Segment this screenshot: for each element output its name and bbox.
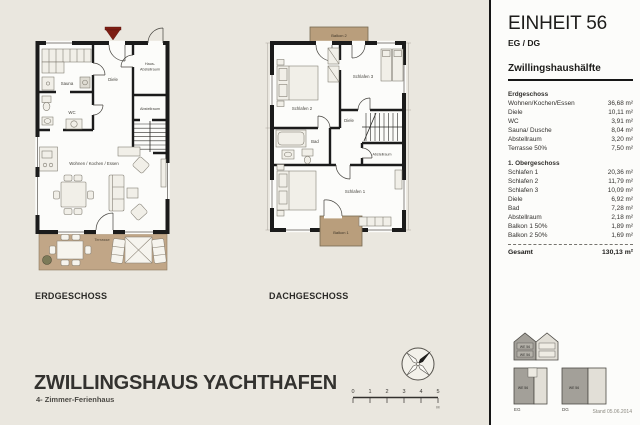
sink bbox=[282, 150, 294, 159]
room-label-schlafen2: Schlafen 2 bbox=[292, 106, 313, 111]
row-label: Abstellraum bbox=[508, 135, 542, 144]
floor-label-dachgeschoss: DACHGESCHOSS bbox=[269, 291, 348, 301]
row-label: Terrasse 50% bbox=[508, 144, 547, 153]
table-row: Balkon 1 50%1,89 m² bbox=[508, 222, 633, 231]
table-row: Balkon 2 50%1,69 m² bbox=[508, 231, 633, 240]
table-row: Abstellraum3,20 m² bbox=[508, 135, 633, 144]
bench bbox=[359, 217, 391, 226]
room-label-balkon1: Balkon 1 bbox=[333, 230, 349, 235]
row-label: Sauna/ Dusche bbox=[508, 126, 552, 135]
thumb-label-eg: EG bbox=[514, 407, 521, 412]
scale-unit-label: M bbox=[436, 406, 439, 410]
row-value: 36,68 m² bbox=[608, 99, 633, 108]
table-row: Diele10,11 m² bbox=[508, 108, 633, 117]
unit-title: EINHEIT 56 bbox=[508, 13, 633, 35]
room-label-schlafen3: Schlafen 3 bbox=[353, 74, 374, 79]
row-value: 1,69 m² bbox=[611, 231, 633, 240]
bed-schlafen1 bbox=[277, 165, 316, 217]
we-label: WE 56 bbox=[569, 386, 579, 390]
sideboard bbox=[118, 147, 140, 156]
room-label-balkon2: Balkon 2 bbox=[331, 33, 347, 38]
bathtub bbox=[276, 130, 306, 147]
washer bbox=[66, 119, 82, 129]
shower bbox=[42, 77, 54, 90]
room-label-schlafen1: Schlafen 1 bbox=[345, 189, 366, 194]
row-label: Wohnen/Kochen/Essen bbox=[508, 99, 575, 108]
row-value: 3,20 m² bbox=[611, 135, 633, 144]
scale-tick-label: 5 bbox=[436, 389, 439, 395]
room-label-terrasse: Terrasse bbox=[94, 237, 110, 242]
row-value: 3,91 m² bbox=[611, 117, 633, 126]
sofa bbox=[109, 175, 124, 211]
row-label: Bad bbox=[508, 204, 519, 213]
sink bbox=[42, 117, 53, 125]
stand-note: Stand 05.06.2014 bbox=[593, 409, 632, 415]
row-value: 10,09 m² bbox=[608, 186, 633, 195]
row-value: 20,36 m² bbox=[608, 168, 633, 177]
row-value: 7,28 m² bbox=[611, 204, 633, 213]
scale-tick-label: 3 bbox=[402, 389, 405, 395]
table-row: WC3,91 m² bbox=[508, 117, 633, 126]
total-value: 130,13 m² bbox=[602, 249, 633, 256]
room-label-haus-abstellraum2: Abstellraum bbox=[140, 68, 160, 72]
table-row: Wohnen/Kochen/Essen36,68 m² bbox=[508, 99, 633, 108]
unit-key-diagram: WE 56 WE 56 WE 56 WE 56 EG DG bbox=[512, 330, 612, 414]
scale-tick-label: 4 bbox=[419, 389, 422, 395]
row-label: Diele bbox=[508, 195, 523, 204]
sheet-subtitle: 4- Zimmer-Ferienhaus bbox=[36, 395, 114, 404]
total-row: Gesamt 130,13 m² bbox=[508, 244, 633, 256]
room-label-bad: Bad bbox=[311, 139, 319, 144]
room-label-wohnen: Wohnen / Kochen / Essen bbox=[69, 161, 119, 166]
coffee-table bbox=[127, 188, 138, 198]
section-heading: Zwillingshaushälfte bbox=[508, 63, 633, 74]
we-label: WE 56 bbox=[520, 353, 530, 357]
row-label: Diele bbox=[508, 108, 523, 117]
lounge-chair bbox=[152, 238, 167, 263]
row-value: 7,50 m² bbox=[611, 144, 633, 153]
floorplan-dachgeschoss: Balkon 2 Schlafen 2 Schlafen 3 Diele Bad… bbox=[262, 20, 422, 265]
row-label: Schlafen 1 bbox=[508, 168, 538, 177]
group-heading-erdgeschoss: Erdgeschoss bbox=[508, 90, 633, 99]
floor-label-erdgeschoss: ERDGESCHOSS bbox=[35, 291, 107, 301]
row-label: Schlafen 2 bbox=[508, 177, 538, 186]
sheet-title: ZWILLINGSHAUS YACHTHAFEN bbox=[34, 372, 337, 395]
row-value: 1,89 m² bbox=[611, 222, 633, 231]
row-value: 6,92 m² bbox=[611, 195, 633, 204]
tv-board bbox=[161, 159, 166, 187]
we-label: WE 56 bbox=[518, 386, 528, 390]
row-label: WC bbox=[508, 117, 519, 126]
total-label: Gesamt bbox=[508, 249, 533, 256]
compass-icon bbox=[399, 345, 437, 383]
room-label-diele: Diele bbox=[108, 77, 118, 82]
x-table bbox=[125, 237, 152, 263]
lounge-chair bbox=[111, 238, 126, 263]
room-label-diele: Diele bbox=[344, 118, 354, 123]
row-label: Abstellraum bbox=[508, 213, 542, 222]
bed-schlafen2 bbox=[277, 60, 318, 107]
table-row: Schlafen 211,79 m² bbox=[508, 177, 633, 186]
scale-tick-label: 2 bbox=[385, 389, 388, 395]
row-value: 11,79 m² bbox=[608, 177, 633, 186]
we-label: WE 56 bbox=[520, 345, 530, 349]
scale-bar: 0 1 2 3 4 5 M bbox=[349, 386, 441, 410]
kitchen-counter bbox=[40, 147, 58, 171]
row-value: 8,04 m² bbox=[611, 126, 633, 135]
room-label-wc: WC bbox=[68, 110, 75, 115]
room-label-abstellraum: Abstellraum bbox=[140, 107, 160, 111]
room-label-haus-abstellraum: Haus- bbox=[145, 62, 156, 66]
row-label: Schlafen 3 bbox=[508, 186, 538, 195]
heading-rule bbox=[508, 79, 633, 81]
scale-tick-label: 1 bbox=[368, 389, 371, 395]
table-row: Diele6,92 m² bbox=[508, 195, 633, 204]
table-row: Terrasse 50%7,50 m² bbox=[508, 144, 633, 153]
unit-subtitle: EG / DG bbox=[508, 38, 633, 48]
room-label-abstellraum: Abstellraum bbox=[373, 153, 392, 157]
table-row: Sauna/ Dusche8,04 m² bbox=[508, 126, 633, 135]
dresser bbox=[395, 170, 402, 189]
table-row: Bad7,28 m² bbox=[508, 204, 633, 213]
group-heading-obergeschoss: 1. Obergeschoss bbox=[508, 159, 633, 168]
entrance-marker-icon bbox=[105, 27, 121, 40]
room-label-sauna: Sauna bbox=[61, 81, 74, 86]
row-label: Balkon 2 50% bbox=[508, 231, 547, 240]
area-table: Erdgeschoss Wohnen/Kochen/Essen36,68 m² … bbox=[508, 90, 633, 256]
table-row: Abstellraum2,18 m² bbox=[508, 213, 633, 222]
floorplan-erdgeschoss: Sauna WC Diele Haus- Abstellraum Abstell… bbox=[30, 25, 190, 290]
scale-tick-label: 0 bbox=[351, 389, 354, 395]
row-value: 2,18 m² bbox=[611, 213, 633, 222]
table-row: Schlafen 120,36 m² bbox=[508, 168, 633, 177]
row-value: 10,11 m² bbox=[608, 108, 633, 117]
table-row: Schlafen 310,09 m² bbox=[508, 186, 633, 195]
plan-sheet: Sauna WC Diele Haus- Abstellraum Abstell… bbox=[0, 0, 640, 425]
row-label: Balkon 1 50% bbox=[508, 222, 547, 231]
thumb-label-dg: DG bbox=[562, 407, 569, 412]
plant bbox=[43, 256, 52, 265]
